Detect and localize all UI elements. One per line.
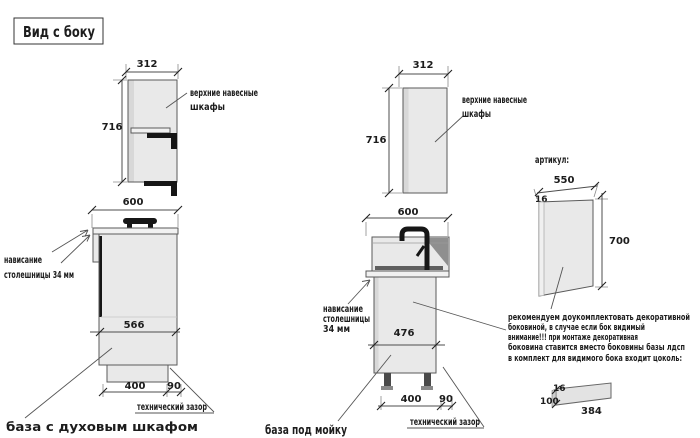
dim-plinth-thickness: 16	[553, 384, 566, 394]
foot-right	[421, 386, 433, 390]
countertop-overhang-return	[93, 234, 99, 262]
dim-plinth-400: 400	[125, 381, 146, 392]
dim-front-height: 476	[394, 328, 415, 339]
overhang-label-line2: столешницы 34 мм	[4, 270, 74, 281]
shelf	[131, 128, 170, 133]
tech-gap-label: технический зазор	[137, 402, 207, 413]
dim-front-height: 566	[124, 320, 145, 331]
dim-base-width: 600	[123, 197, 144, 208]
upper-cabinet-label-line2: шкафы	[462, 109, 491, 120]
dim-height: 716	[366, 135, 387, 146]
note-line-1: рекомендуем доукомплектовать декоративно…	[508, 313, 690, 323]
sink-unit-upper-cabinet: 312 716 верхние навесные шкафы	[366, 60, 527, 197]
oven-door-gap	[100, 236, 103, 317]
tech-gap-label: технический зазор	[410, 417, 480, 428]
sink-bottom-shadow	[375, 266, 443, 270]
note-line-2: боковиной, в случае если бок видимый	[508, 322, 645, 333]
foot-left	[381, 386, 393, 390]
dim-panel-width: 550	[554, 175, 575, 186]
leg-left	[384, 373, 391, 386]
base-cabinet-body	[99, 234, 177, 365]
overhang-label-line1: нависание	[4, 255, 42, 266]
oven-unit-upper-cabinet: 312 716 верхние навесные шкафы	[102, 59, 258, 196]
countertop	[366, 271, 449, 277]
unit-caption: база под мойку	[265, 422, 347, 437]
dim-plinth-400: 400	[401, 394, 422, 405]
sink-unit-base-cabinet: 600 нависание столешницы 34 мм 476 400 9…	[265, 207, 506, 437]
unit-caption: база с духовым шкафом	[6, 419, 198, 434]
dim-gap-90: 90	[439, 394, 453, 405]
base-cabinet-body	[374, 277, 436, 373]
dim-height: 716	[102, 122, 123, 133]
technical-drawing-page: Вид с боку 312 716 верхние навесные шкаф…	[0, 0, 700, 438]
leg-right	[424, 373, 431, 386]
overhang-arrow	[348, 280, 370, 304]
dim-gap-90: 90	[167, 381, 181, 392]
dim-line-550	[537, 186, 597, 193]
note-line-3-warning: внимание!!! при монтаже декоративная	[508, 333, 638, 343]
note-line-5: в комплект для видимого бока входит цоко…	[508, 353, 682, 364]
overhang-label-line3: 34 мм	[323, 324, 350, 335]
legs	[381, 373, 433, 390]
light-profile-bottom	[144, 181, 177, 196]
upper-cabinet-label-line1: верхние навесные	[190, 88, 258, 99]
title-block: Вид с боку	[14, 18, 103, 44]
dim-panel-height: 700	[609, 236, 630, 247]
upper-cabinet-label-line2: шкафы	[190, 102, 225, 113]
decorative-side-panel-section: артикул: 550 16 700 рекомендуем доукомпл…	[508, 155, 690, 417]
countertop	[93, 228, 178, 234]
door-edge-strip	[404, 89, 409, 193]
dim-base-width: 600	[398, 207, 419, 218]
door-edge-strip	[375, 278, 379, 373]
artikul-heading: артикул:	[535, 155, 569, 166]
side-view-drawing: Вид с боку 312 716 верхние навесные шкаф…	[0, 0, 700, 438]
decorative-panel	[539, 200, 593, 296]
upper-cabinet-label-line1: верхние навесные	[462, 95, 527, 106]
dim-plinth-length: 384	[581, 406, 602, 417]
panel-edge-strip	[539, 202, 544, 296]
recommendation-note: рекомендуем доукомплектовать декоративно…	[508, 313, 690, 364]
plinth	[107, 365, 168, 382]
page-title: Вид с боку	[23, 23, 95, 41]
upper-cabinet-body	[403, 88, 447, 193]
dim-width: 312	[137, 59, 158, 70]
dim-width: 312	[413, 60, 434, 71]
oven-unit-base-cabinet: 600 нависание столешницы 34 мм 566 400 9…	[4, 197, 214, 434]
plinth-piece: 16 100 384	[540, 383, 611, 417]
note-line-4-warning: боковина ставится вместо боковины базы л…	[508, 342, 685, 353]
caption-leader	[25, 348, 112, 418]
dim-plinth-height: 100	[540, 397, 559, 407]
overhang-arrows	[52, 230, 90, 263]
